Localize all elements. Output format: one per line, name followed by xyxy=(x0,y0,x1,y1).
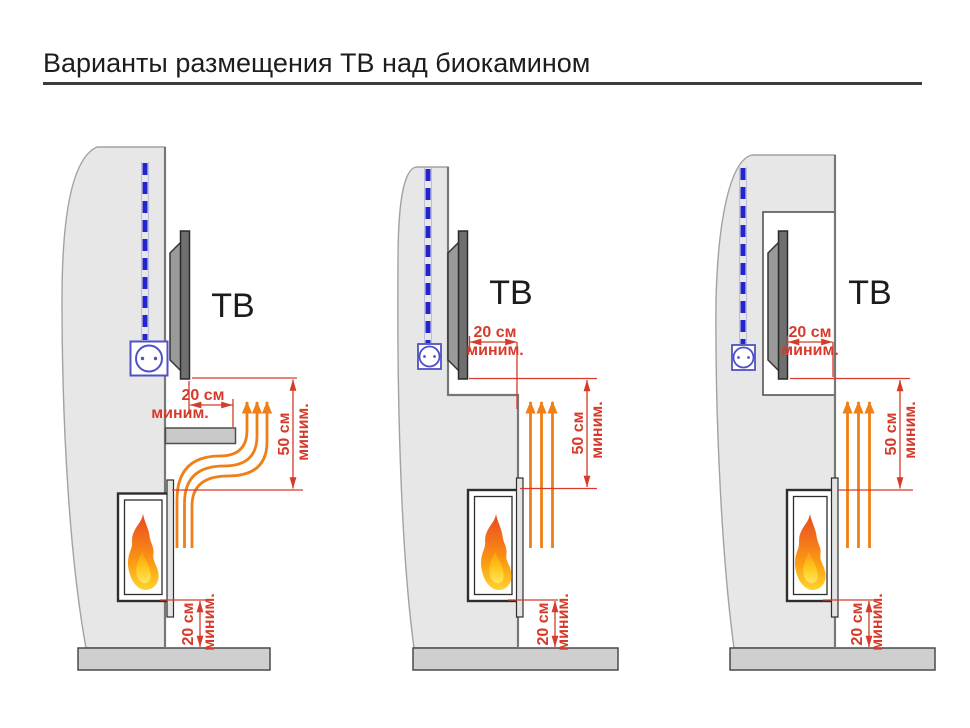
dim-value: 20 см xyxy=(789,324,832,341)
biofireplace xyxy=(787,478,838,617)
tv-back xyxy=(768,242,779,371)
dim-qualifier: миним. xyxy=(869,593,886,650)
biofireplace xyxy=(118,480,174,617)
diagram-mantel-shelf: ТВ 20 см миним. 50 см миним. xyxy=(62,147,312,670)
tv-back xyxy=(448,242,459,371)
power-outlet-icon xyxy=(131,342,168,376)
floor-slab xyxy=(730,648,935,670)
floor-slab xyxy=(413,648,618,670)
dim-value: 20 см xyxy=(535,603,552,646)
tv-label: ТВ xyxy=(211,287,254,325)
floor-slab xyxy=(78,648,270,670)
fireplace-glass xyxy=(832,478,839,617)
airflow-arrows xyxy=(531,402,553,548)
power-outlet-icon xyxy=(732,345,755,370)
dim-value: 20 см xyxy=(849,603,866,646)
tv-label: ТВ xyxy=(489,274,532,312)
dim-qualifier: миним. xyxy=(151,405,208,422)
tv-back xyxy=(170,242,181,371)
dim-qualifier: миним. xyxy=(555,593,572,650)
mantel-shelf xyxy=(166,428,236,444)
dim-value: 50 см xyxy=(276,413,293,456)
diagram-canvas: ТВ 20 см миним. 50 см миним. xyxy=(0,0,970,728)
biofireplace xyxy=(468,478,523,617)
power-outlet-icon xyxy=(418,344,441,369)
dim-value: 50 см xyxy=(883,413,900,456)
dim-value: 20 см xyxy=(182,387,225,404)
dim-qualifier: миним. xyxy=(466,342,523,359)
dim-value: 20 см xyxy=(180,603,197,646)
tv-side-view xyxy=(170,231,190,379)
tv-label: ТВ xyxy=(848,274,891,312)
dim-qualifier: миним. xyxy=(589,401,606,458)
dim-qualifier: миним. xyxy=(201,593,218,650)
tv-side-view xyxy=(448,231,468,379)
dim-qualifier: миним. xyxy=(295,403,312,460)
diagram-tv-niche: ТВ 20 см миним. 50 см миним. xyxy=(716,155,935,670)
fireplace-glass xyxy=(167,480,174,617)
dim-value: 20 см xyxy=(474,324,517,341)
slide: Варианты размещения ТВ над биокамином xyxy=(0,0,970,728)
tv-panel xyxy=(181,231,190,379)
airflow-arrows xyxy=(177,402,267,548)
dim-qualifier: миним. xyxy=(781,342,838,359)
diagram-recessed-tv: ТВ 20 см миним. 50 см миним. xyxy=(398,167,618,670)
fireplace-glass xyxy=(517,478,524,617)
dim-value: 50 см xyxy=(570,412,587,455)
airflow-arrows xyxy=(848,402,870,548)
dim-qualifier: миним. xyxy=(902,401,919,458)
